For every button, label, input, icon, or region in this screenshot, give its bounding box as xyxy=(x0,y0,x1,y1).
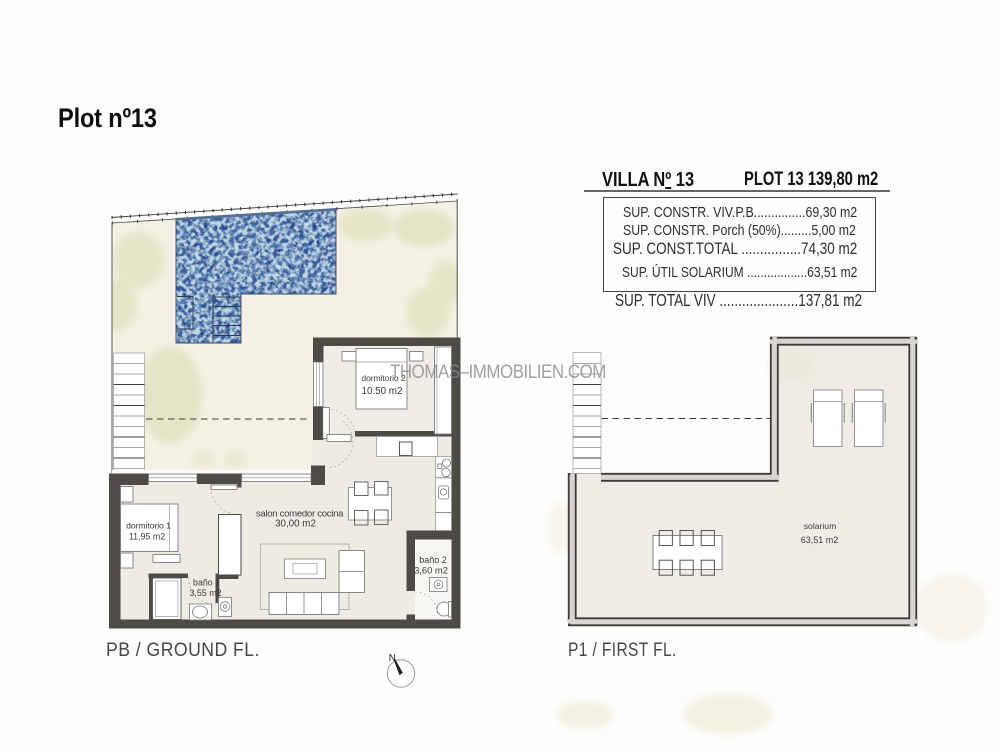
svg-text:solarium: solarium xyxy=(804,521,836,531)
svg-text:30,00 m2: 30,00 m2 xyxy=(275,519,316,530)
svg-text:baño 1: baño 1 xyxy=(193,578,220,588)
svg-text:baño 2: baño 2 xyxy=(419,555,447,565)
svg-text:63,51 m2: 63,51 m2 xyxy=(801,535,839,545)
svg-text:3,55 m2: 3,55 m2 xyxy=(189,588,221,598)
svg-text:10.50 m2: 10.50 m2 xyxy=(362,386,403,397)
svg-text:N: N xyxy=(389,653,396,664)
svg-text:dormitorio 1: dormitorio 1 xyxy=(126,521,171,531)
svg-text:3,60 m2: 3,60 m2 xyxy=(414,565,448,576)
svg-text:11,95 m2: 11,95 m2 xyxy=(129,532,165,542)
